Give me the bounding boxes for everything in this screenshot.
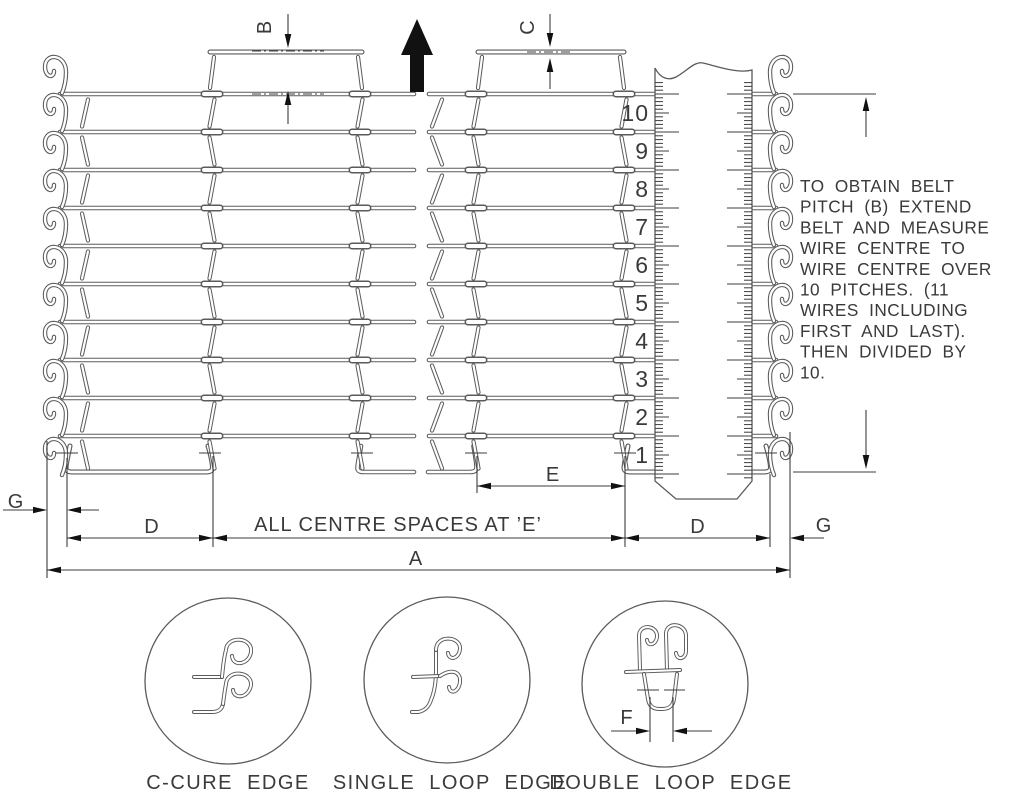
dim-label-g-right: G (816, 515, 833, 537)
wire-belt-diagram: 10987654321 B C G D ALL CENTRE SPACES AT… (0, 0, 1009, 809)
note-block: TO OBTAIN BELTPITCH (B) EXTENDBELT AND M… (800, 176, 992, 382)
ruler-number: 7 (635, 214, 649, 240)
edge-label-double-loop: DOUBLE LOOP EDGE (549, 772, 792, 794)
note-line: WIRES INCLUDING (800, 300, 968, 320)
dim-label-b: B (254, 20, 276, 34)
ruler-number: 5 (635, 290, 649, 316)
edge-label-c-cure: C-CURE EDGE (146, 772, 310, 794)
note-line: TO OBTAIN BELT (800, 176, 955, 196)
belt-travel-direction-arrow-icon (401, 19, 433, 92)
ruler-number: 8 (635, 176, 649, 202)
ruler-body (655, 63, 752, 499)
dim-label-a: A (409, 548, 423, 570)
note-line: FIRST AND LAST). (800, 321, 966, 341)
dim-label-d-right: D (690, 516, 705, 538)
note-line: PITCH (B) EXTEND (800, 197, 972, 217)
ruler-number: 1 (635, 442, 649, 468)
dim-label-c: C (517, 19, 539, 34)
dim-label-d-left: D (144, 516, 159, 538)
note-line: 10. (800, 362, 825, 382)
ruler-number: 6 (635, 252, 649, 278)
note-line: WIRE CENTRE OVER (800, 259, 992, 279)
diagram-canvas: 10987654321 B C G D ALL CENTRE SPACES AT… (0, 0, 1009, 809)
ruler-number: 2 (635, 404, 649, 430)
centre-spaces-note: ALL CENTRE SPACES AT ’E’ (254, 514, 542, 536)
note-line: BELT AND MEASURE (800, 217, 989, 237)
dim-label-f: F (620, 707, 633, 729)
pitch-ruler: 10987654321 (621, 63, 752, 499)
pitch-measurement-note: TO OBTAIN BELTPITCH (B) EXTENDBELT AND M… (800, 176, 992, 382)
edge-detail-circles: C-CURE EDGE SINGLE LOOP EDGE DOUBLE LOOP… (145, 597, 793, 794)
edge-circle-double-loop (582, 601, 748, 767)
edge-circle-single-loop (364, 597, 530, 763)
ruler-number: 9 (635, 138, 649, 164)
note-line: 10 PITCHES. (11 (800, 280, 949, 300)
ruler-number: 4 (635, 328, 649, 354)
edge-label-single-loop: SINGLE LOOP EDGE (333, 772, 567, 794)
note-line: WIRE CENTRE TO (800, 238, 965, 258)
note-line: THEN DIVIDED BY (800, 342, 967, 362)
ruler-number: 3 (635, 366, 649, 392)
ruler-number: 10 (621, 100, 649, 126)
dim-label-e: E (546, 464, 560, 486)
